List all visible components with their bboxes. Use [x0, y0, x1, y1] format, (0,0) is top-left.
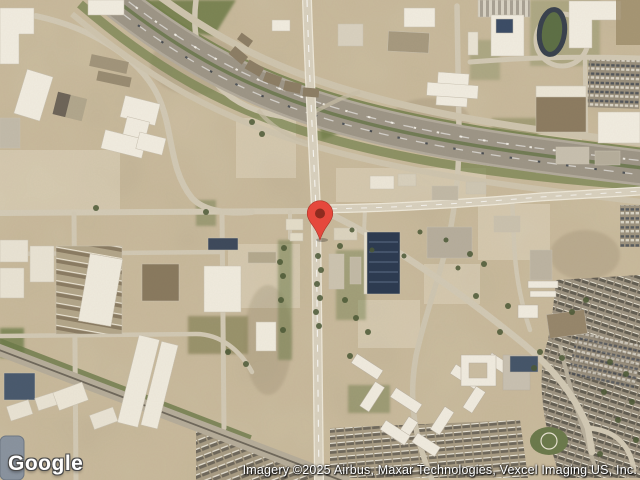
imagery-attribution: Imagery ©2025 Airbus, Maxar Technologies…: [243, 463, 637, 477]
map-viewport[interactable]: Google Imagery ©2025 Airbus, Maxar Techn…: [0, 0, 640, 480]
satellite-imagery: [0, 0, 640, 480]
google-logo[interactable]: Google: [8, 452, 83, 476]
